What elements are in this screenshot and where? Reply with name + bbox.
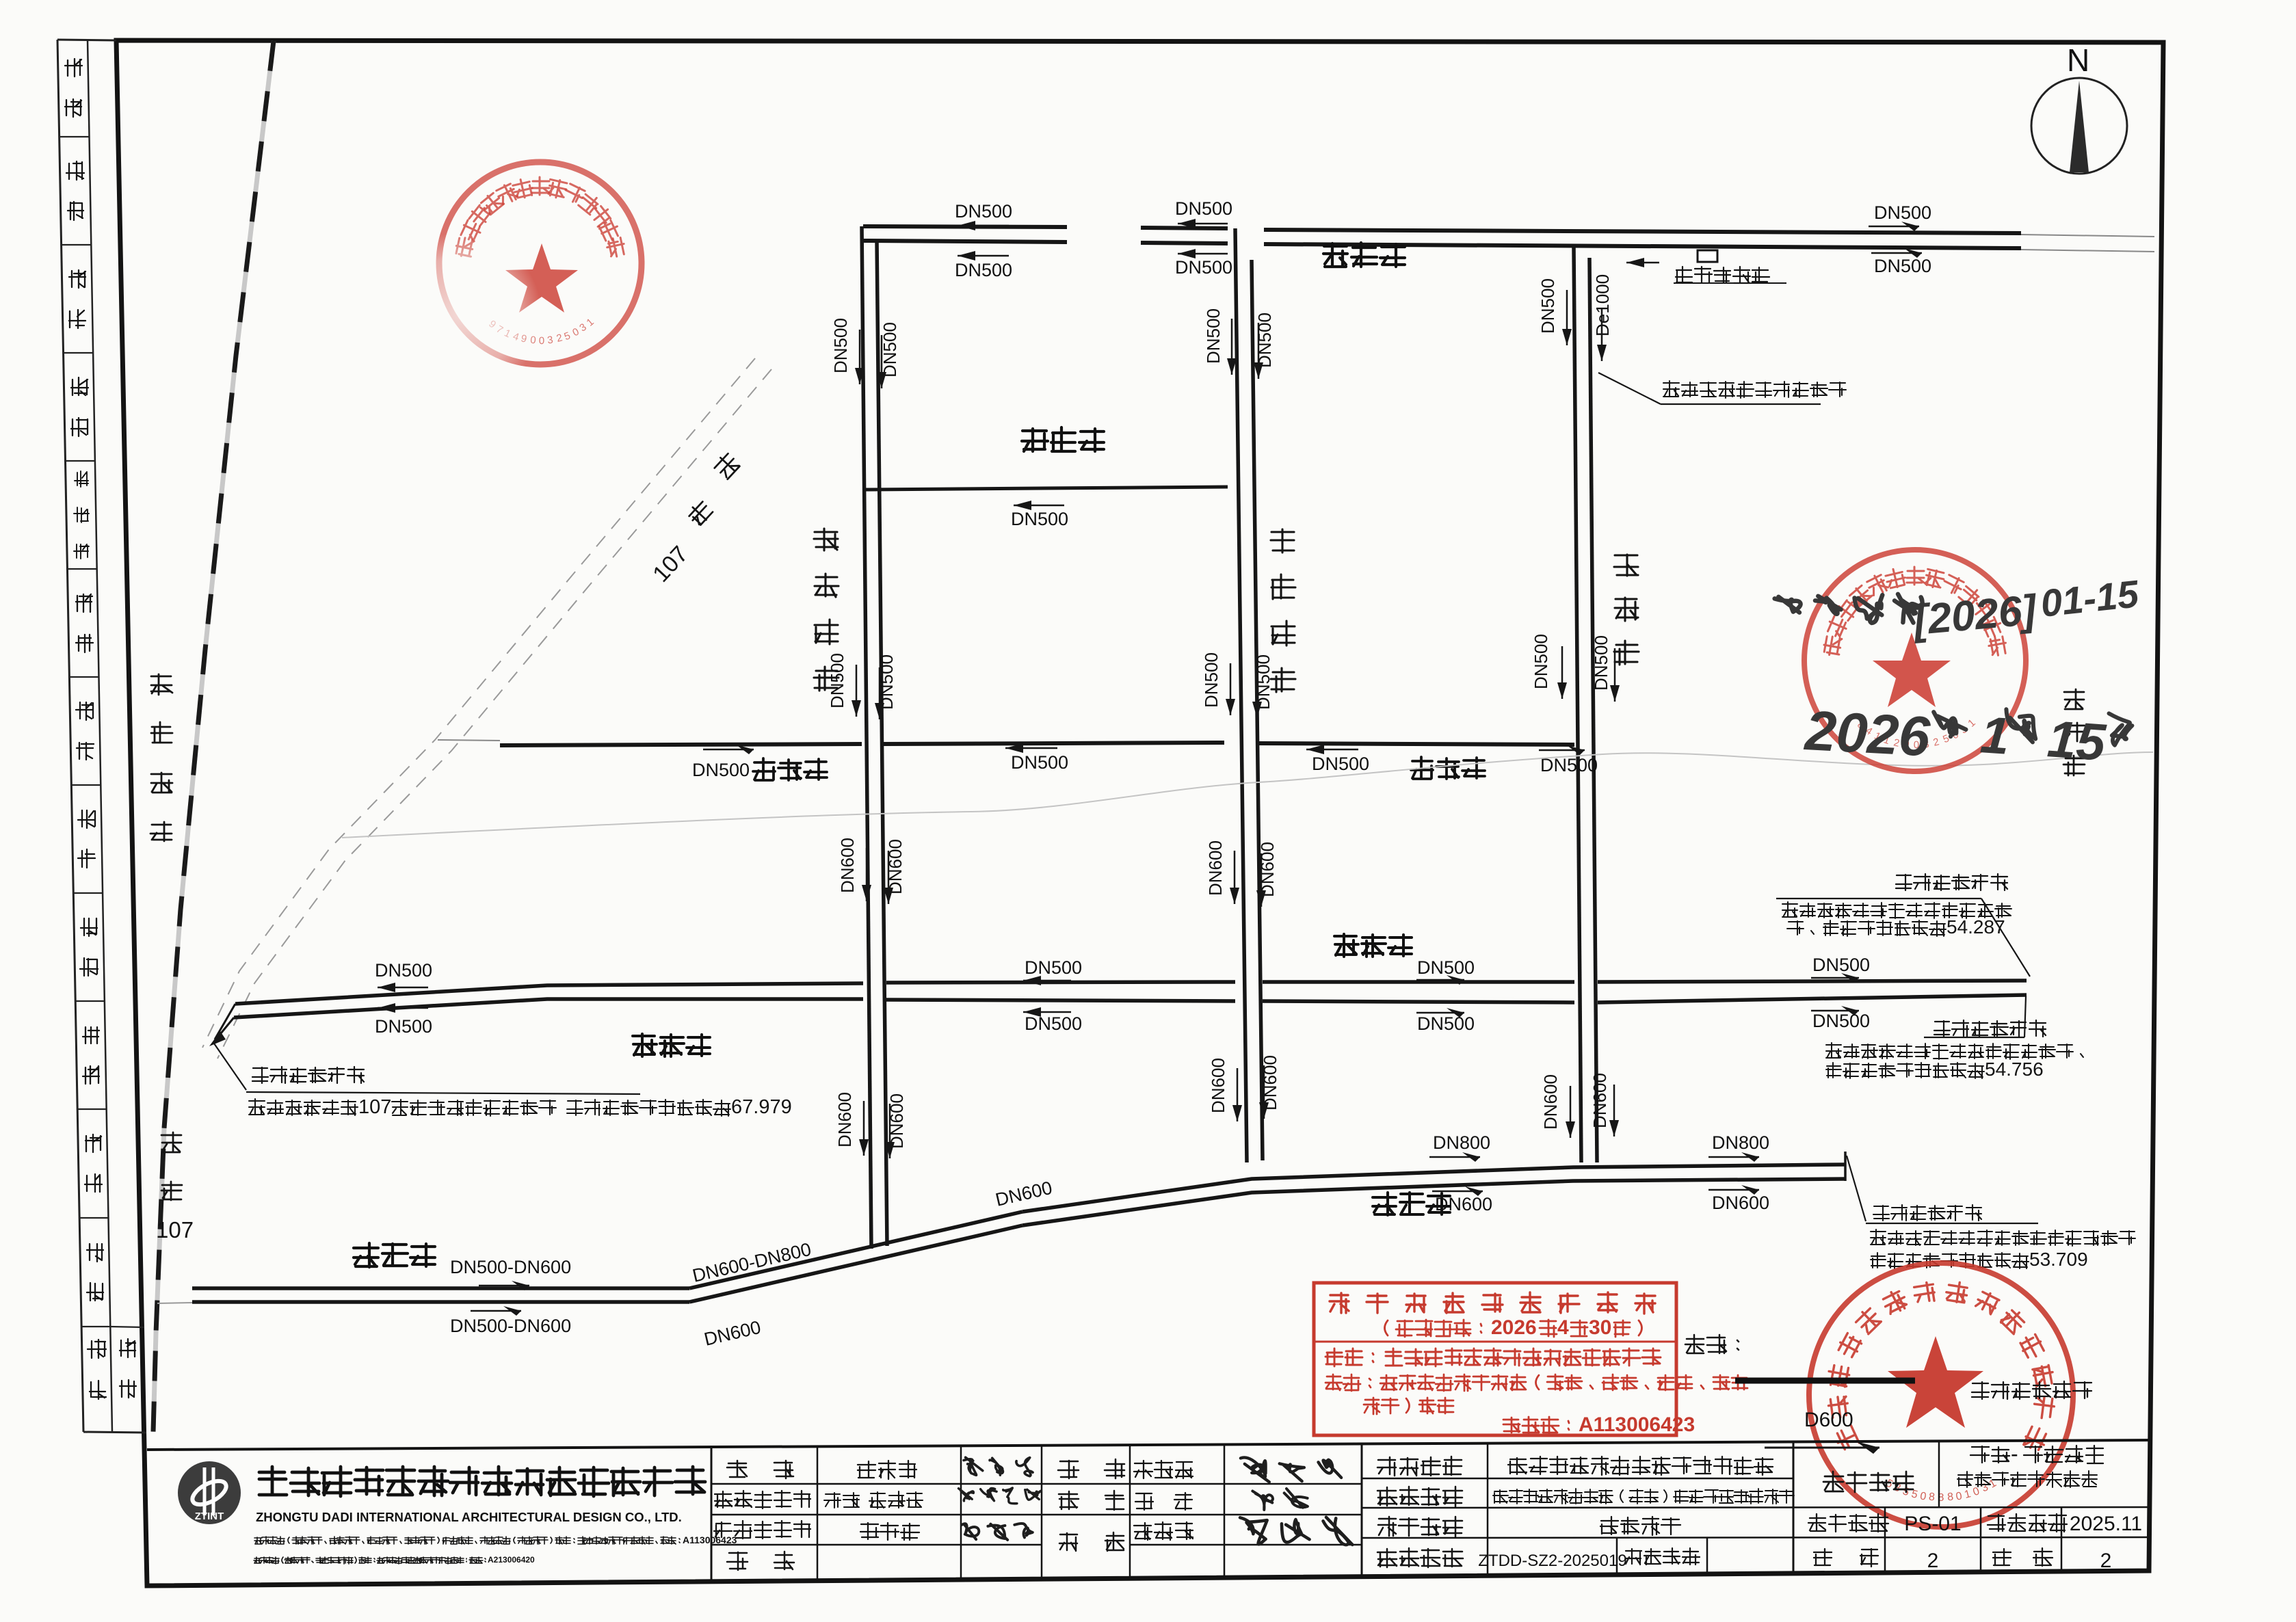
svg-text:2: 2 (555, 332, 564, 345)
svg-text:DN600: DN600 (1260, 1055, 1280, 1111)
svg-text:DN500: DN500 (955, 260, 1012, 280)
svg-text:ZTINT: ZTINT (195, 1511, 224, 1522)
svg-text:DN600: DN600 (702, 1317, 763, 1350)
svg-text:DN500: DN500 (1011, 752, 1068, 773)
svg-text:D600: D600 (1804, 1409, 1853, 1431)
svg-text:54.287: 54.287 (1947, 916, 2005, 938)
svg-text:ZTDD-SZ2-2025019: ZTDD-SZ2-2025019 (1478, 1552, 1626, 1570)
svg-text:DN500: DN500 (827, 653, 847, 708)
svg-text:2: 2 (2100, 1550, 2112, 1572)
svg-text:DN600: DN600 (837, 838, 858, 893)
svg-text:DN500: DN500 (830, 318, 851, 373)
svg-text:DN500-DN600: DN500-DN600 (450, 1257, 571, 1277)
svg-text:DN500: DN500 (1254, 313, 1275, 368)
svg-text:DN600: DN600 (1208, 1058, 1228, 1113)
svg-text:A213006420: A213006420 (488, 1555, 535, 1565)
svg-text:67.979: 67.979 (731, 1096, 792, 1118)
svg-text:30: 30 (1589, 1316, 1611, 1339)
svg-text:0: 0 (539, 335, 545, 347)
svg-text:1: 1 (1963, 1488, 1972, 1501)
svg-text:N: N (2067, 42, 2089, 78)
svg-text:2026: 2026 (1491, 1316, 1537, 1339)
svg-text:107: 107 (358, 1096, 391, 1118)
svg-text:DN800: DN800 (1433, 1132, 1490, 1153)
svg-text:DN500: DN500 (1874, 256, 1931, 276)
svg-text:54.756: 54.756 (1985, 1059, 2044, 1080)
svg-text:DN500: DN500 (1203, 308, 1224, 364)
svg-text:DN500: DN500 (1011, 509, 1068, 529)
svg-text:DN500: DN500 (1591, 635, 1611, 691)
svg-text:DN600: DN600 (834, 1092, 855, 1147)
svg-text:15: 15 (2046, 710, 2109, 772)
svg-text:A113006423: A113006423 (683, 1534, 737, 1545)
svg-text:ZHONGTU DADI INTERNATIONAL ARC: ZHONGTU DADI INTERNATIONAL ARCHITECTURAL… (256, 1510, 682, 1524)
svg-text:DN500: DN500 (1175, 198, 1232, 219)
svg-text:DN500: DN500 (1417, 957, 1475, 978)
svg-text:3: 3 (546, 334, 553, 347)
svg-text:DN500: DN500 (1175, 257, 1232, 278)
svg-text:2: 2 (1932, 736, 1940, 749)
svg-text:DN600: DN600 (1435, 1194, 1492, 1214)
svg-text:DN500: DN500 (1201, 652, 1222, 708)
svg-text:8: 8 (1947, 1491, 1953, 1504)
svg-text:DN500: DN500 (1025, 1013, 1082, 1034)
svg-text:DN500: DN500 (955, 201, 1012, 222)
svg-text:DN500: DN500 (1812, 1011, 1870, 1031)
svg-text:DN500: DN500 (1812, 955, 1870, 975)
svg-text:DN600: DN600 (1712, 1193, 1769, 1213)
svg-text:DN600: DN600 (1589, 1073, 1610, 1128)
svg-text:DN600: DN600 (1205, 840, 1226, 896)
svg-text:DN500: DN500 (1531, 634, 1551, 689)
svg-text:4: 4 (1557, 1316, 1569, 1339)
svg-text:DN500: DN500 (1417, 1013, 1475, 1034)
svg-text:DN500: DN500 (692, 760, 750, 780)
svg-text:DN500: DN500 (1253, 654, 1274, 710)
svg-text:2025.11: 2025.11 (2070, 1513, 2142, 1535)
svg-text:107: 107 (648, 541, 693, 587)
svg-text:DN600: DN600 (1540, 1074, 1561, 1130)
svg-text:PS-01: PS-01 (1904, 1513, 1961, 1535)
svg-text:DN500: DN500 (375, 960, 432, 981)
svg-text:1: 1 (1966, 717, 1978, 730)
svg-text:5: 5 (563, 330, 572, 343)
svg-text:0: 0 (1955, 1490, 1963, 1502)
svg-text:DN500: DN500 (1312, 754, 1369, 774)
svg-text:DN500: DN500 (375, 1016, 432, 1037)
svg-text:DN500: DN500 (1874, 202, 1931, 223)
svg-text:DN500: DN500 (1538, 278, 1558, 334)
svg-text:0: 0 (1919, 1490, 1927, 1502)
svg-text:DN800: DN800 (1712, 1132, 1769, 1153)
svg-text:DN500-DN600: DN500-DN600 (450, 1316, 571, 1336)
svg-text:8: 8 (1928, 1491, 1935, 1504)
svg-text:0: 0 (1971, 1485, 1981, 1498)
svg-text:01-15: 01-15 (2039, 572, 2141, 625)
svg-text:107: 107 (156, 1217, 194, 1242)
svg-text:53.709: 53.709 (2029, 1249, 2088, 1270)
svg-text:A113006423: A113006423 (1579, 1413, 1695, 1436)
svg-text:2026: 2026 (1802, 700, 1932, 769)
svg-text:-: - (2011, 1441, 2018, 1466)
svg-text:DN600: DN600 (1257, 842, 1278, 897)
svg-text:DN600: DN600 (994, 1178, 1055, 1210)
svg-text:1: 1 (584, 316, 596, 328)
svg-text:DN500: DN500 (1025, 957, 1082, 978)
svg-text:2: 2 (1927, 1550, 1939, 1572)
svg-text:DN500: DN500 (880, 322, 900, 377)
